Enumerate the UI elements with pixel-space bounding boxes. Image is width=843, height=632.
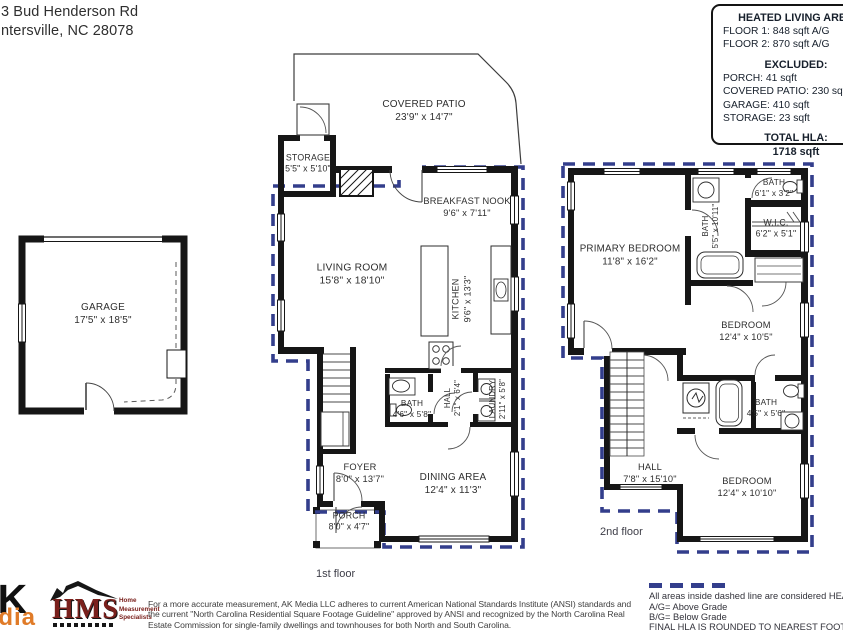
heated-living-area-box: HEATED LIVING AREA FLOOR 1: 848 sqft A/G… xyxy=(711,4,843,145)
property-address: 3 Bud Henderson Rd ntersville, NC 28078 xyxy=(1,3,138,41)
floorplan-page: 3 Bud Henderson Rd ntersville, NC 28078 … xyxy=(0,0,843,632)
chimney-hatch xyxy=(340,169,373,196)
room-label-wic: W.I.C. 6'2" x 5'1" xyxy=(756,218,797,241)
info-total-value: 1718 sqft xyxy=(723,145,843,159)
legend-dash-sample xyxy=(649,583,725,588)
room-label-laundry: LAUNDRY 2'11" x 5'8" xyxy=(488,379,508,419)
under-stair-closet xyxy=(321,412,349,446)
info-excluded-storage: STORAGE: 23 sqft xyxy=(723,112,843,125)
room-label-living-room: LIVING ROOM 15'8" x 18'10" xyxy=(317,262,388,289)
info-floor2: FLOOR 2: 870 sqft A/G xyxy=(723,38,843,51)
info-title: HEATED LIVING AREA xyxy=(723,11,843,25)
address-line1: 3 Bud Henderson Rd xyxy=(1,3,138,22)
stairs-floor2 xyxy=(610,352,644,456)
room-label-hall2: HALL 7'8" x 15'10" xyxy=(623,461,677,485)
room-label-foyer: FOYER 8'0" x 13'7" xyxy=(336,461,384,485)
info-excluded-garage: GARAGE: 410 sqft xyxy=(723,99,843,112)
room-label-covered-patio: COVERED PATIO 23'9" x 14'7" xyxy=(382,98,465,124)
room-label-breakfast-nook: BREAKFAST NOOK 9'6" x 7'11" xyxy=(423,195,510,219)
info-total-title: TOTAL HLA: xyxy=(723,131,843,145)
disclaimer-line3: Estate Commission for single-family dwel… xyxy=(148,620,631,630)
hms-logo: HMS xyxy=(52,594,119,626)
legend-final: FINAL HLA IS ROUNDED TO NEAREST FOOT xyxy=(649,622,843,632)
room-label-bedroom-mid: BEDROOM 12'4" x 10'5" xyxy=(719,319,773,343)
floor2-caption: 2nd floor xyxy=(600,526,643,538)
info-excluded-title: EXCLUDED: xyxy=(723,58,843,72)
room-label-primary-bath: BATH 5'5" x 10'11" xyxy=(701,204,721,249)
linen-closet xyxy=(755,258,803,282)
disclaimer: For a more accurate measurement, AK Medi… xyxy=(148,599,631,630)
room-label-dining-area: DINING AREA 12'4" x 11'3" xyxy=(420,471,487,497)
room-label-kitchen: KITCHEN 9'6" x 13'3" xyxy=(450,276,473,323)
room-label-lower-bath: BATH 4'5" x 5'6" xyxy=(747,397,785,419)
lower-bath-fixtures xyxy=(683,380,804,430)
room-label-storage: STORAGE 5'5" x 5'10" xyxy=(285,153,331,176)
legend-bg: B/G= Below Grade xyxy=(649,612,727,622)
disclaimer-line2: the current "North Carolina Residential … xyxy=(148,609,631,619)
room-label-garage: GARAGE 17'5" x 18'5" xyxy=(74,301,131,327)
info-excluded-porch: PORCH: 41 sqft xyxy=(723,72,843,85)
legend-note: All areas inside dashed line are conside… xyxy=(649,591,843,601)
stairs-floor1 xyxy=(323,354,350,402)
floor1-caption: 1st floor xyxy=(316,568,355,580)
hms-logo-strip xyxy=(53,623,115,627)
ak-media-logo-word: Media xyxy=(0,604,36,632)
address-line2: ntersville, NC 28078 xyxy=(1,22,138,41)
room-label-bath1: BATH 4'6" x 5'8" xyxy=(393,398,431,420)
room-label-top-bath: BATH 6'1" x 3'2" xyxy=(755,177,793,199)
info-floor1: FLOOR 1: 848 sqft A/G xyxy=(723,25,843,38)
room-label-bedroom-bottom: BEDROOM 12'4" x 10'10" xyxy=(718,475,777,499)
legend-ag: A/G= Above Grade xyxy=(649,602,727,612)
disclaimer-line1: For a more accurate measurement, AK Medi… xyxy=(148,599,631,609)
info-excluded-patio: COVERED PATIO: 230 sqft xyxy=(723,85,843,98)
room-label-hall1: HALL 2'1" x 6'4" xyxy=(443,380,463,416)
room-label-primary-bedroom: PRIMARY BEDROOM 11'8" x 16'2" xyxy=(580,243,681,268)
room-label-porch: PORCH 8'0" x 4'7" xyxy=(329,511,370,534)
